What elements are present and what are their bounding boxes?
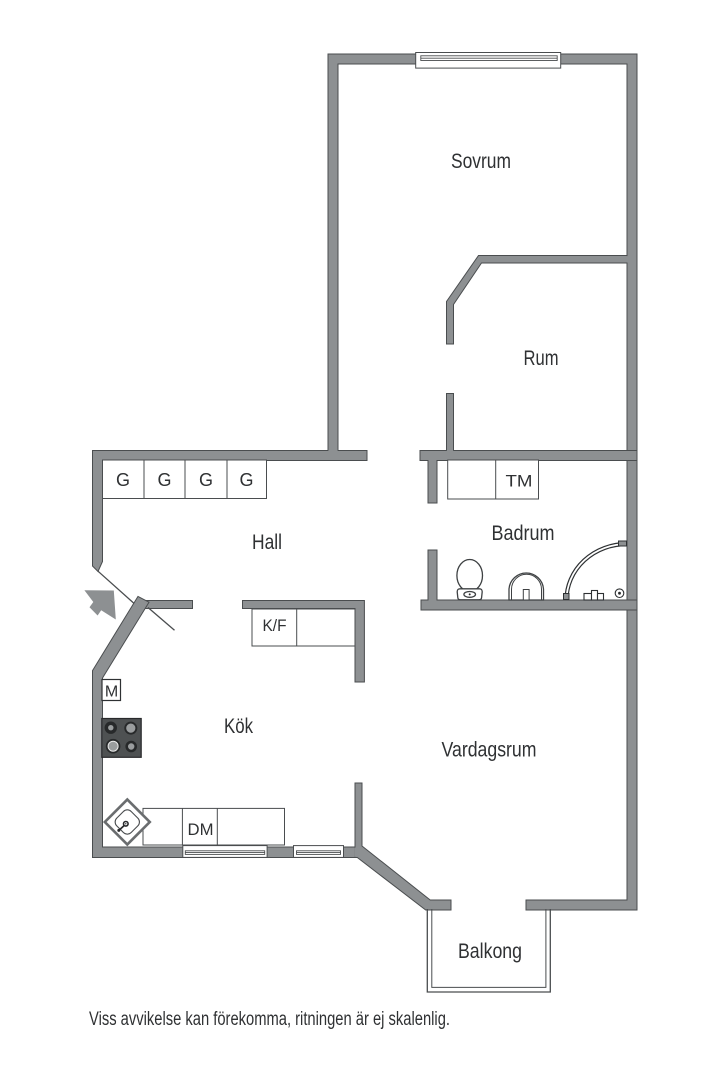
svg-text:Viss avvikelse kan förekomma,: Viss avvikelse kan förekomma, ritningen … <box>89 1009 450 1030</box>
svg-text:TM: TM <box>506 472 533 491</box>
svg-text:Kök: Kök <box>224 715 253 738</box>
svg-text:G: G <box>116 470 130 490</box>
svg-text:G: G <box>199 470 213 490</box>
svg-text:Vardagsrum: Vardagsrum <box>442 739 537 762</box>
svg-text:Rum: Rum <box>524 347 559 370</box>
svg-text:Sovrum: Sovrum <box>451 150 511 173</box>
svg-text:DM: DM <box>188 820 214 839</box>
svg-text:G: G <box>157 470 171 490</box>
svg-text:Balkong: Balkong <box>458 940 522 963</box>
svg-text:M: M <box>105 684 118 701</box>
svg-text:Badrum: Badrum <box>492 522 555 545</box>
svg-text:Hall: Hall <box>252 531 282 554</box>
svg-text:K/F: K/F <box>263 616 287 635</box>
svg-text:G: G <box>239 470 253 490</box>
